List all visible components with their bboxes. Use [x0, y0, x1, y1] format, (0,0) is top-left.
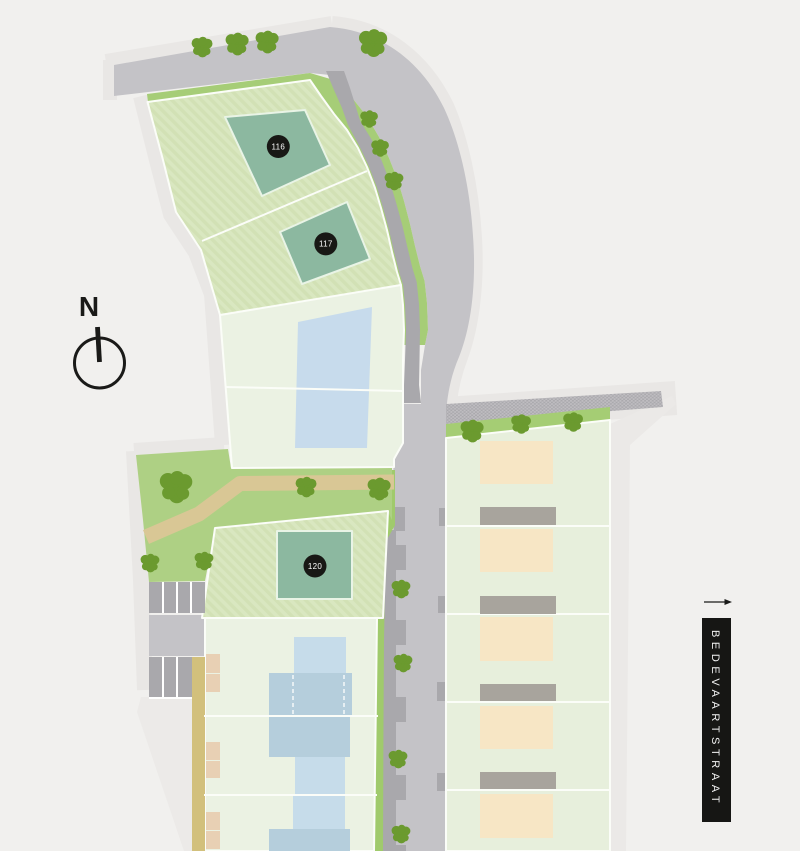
svg-text:117: 117: [319, 240, 333, 249]
svg-text:BEDEVAARTSTRAAT: BEDEVAARTSTRAAT: [709, 630, 721, 807]
svg-text:N: N: [79, 291, 99, 322]
svg-text:120: 120: [308, 562, 322, 571]
svg-text:116: 116: [271, 142, 285, 151]
